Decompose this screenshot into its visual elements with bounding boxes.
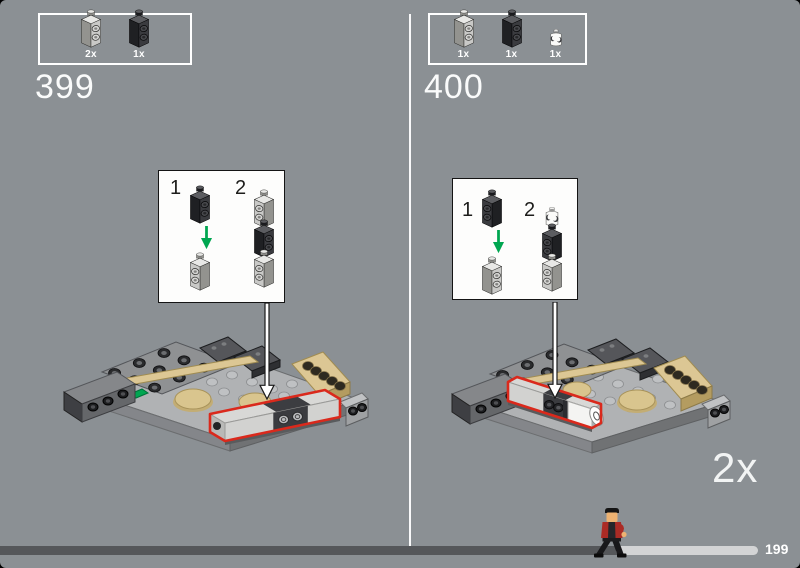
instruction-page: 2x 1x 399 1 2 [0, 0, 800, 568]
placement-arrow-399 [259, 303, 275, 401]
substep-box-400: 1 2 [452, 178, 578, 300]
green-arrow-down-icon [492, 230, 505, 254]
part-item: 1x [451, 9, 477, 60]
part-item: 2x [78, 9, 104, 60]
part-count: 1x [133, 50, 145, 60]
part-count: 1x [550, 50, 562, 60]
tower-brick-gray-icon [539, 253, 565, 293]
step-number-399: 399 [35, 70, 95, 104]
repeat-multiplier-label: 2x [712, 444, 758, 492]
brick-gray-icon [479, 256, 505, 296]
step-number-400: 400 [424, 70, 484, 104]
brick-1x1x2-side-studs-gray-icon [451, 9, 477, 49]
brick-black-icon [479, 189, 505, 229]
substep-2-label: 2 [235, 177, 246, 200]
placement-arrow-400 [547, 302, 563, 400]
progress-bar-remaining[interactable] [616, 546, 758, 555]
brick-1x1x2-side-studs-black-icon [499, 9, 525, 49]
walking-minifigure-icon [593, 507, 633, 559]
part-count: 2x [85, 50, 97, 60]
substep-1-label: 1 [462, 199, 473, 222]
part-count: 1x [458, 50, 470, 60]
green-arrow-down-icon [200, 226, 213, 250]
brick-1x1x2-side-studs-gray-icon [78, 9, 104, 49]
progress-bar-completed[interactable] [0, 546, 622, 555]
part-item: 1x [499, 9, 525, 60]
substep-box-399: 1 2 [158, 170, 285, 303]
substep-2-label: 2 [524, 199, 535, 222]
part-item: 1x [126, 9, 152, 60]
round-brick-white-icon [547, 29, 565, 49]
tower-brick-gray-icon [251, 249, 277, 289]
parts-box-step-400: 1x 1x 1x [428, 13, 587, 65]
brick-1x1x2-side-studs-black-icon [126, 9, 152, 49]
part-item: 1x [547, 29, 565, 60]
substep-1-label: 1 [170, 177, 181, 200]
page-number: 199 [765, 541, 788, 557]
parts-box-step-399: 2x 1x [38, 13, 192, 65]
assembly-illustration-step-399 [60, 322, 370, 467]
part-count: 1x [506, 50, 518, 60]
brick-black-icon [187, 185, 213, 225]
brick-gray-icon [187, 252, 213, 292]
panel-divider [409, 14, 411, 546]
